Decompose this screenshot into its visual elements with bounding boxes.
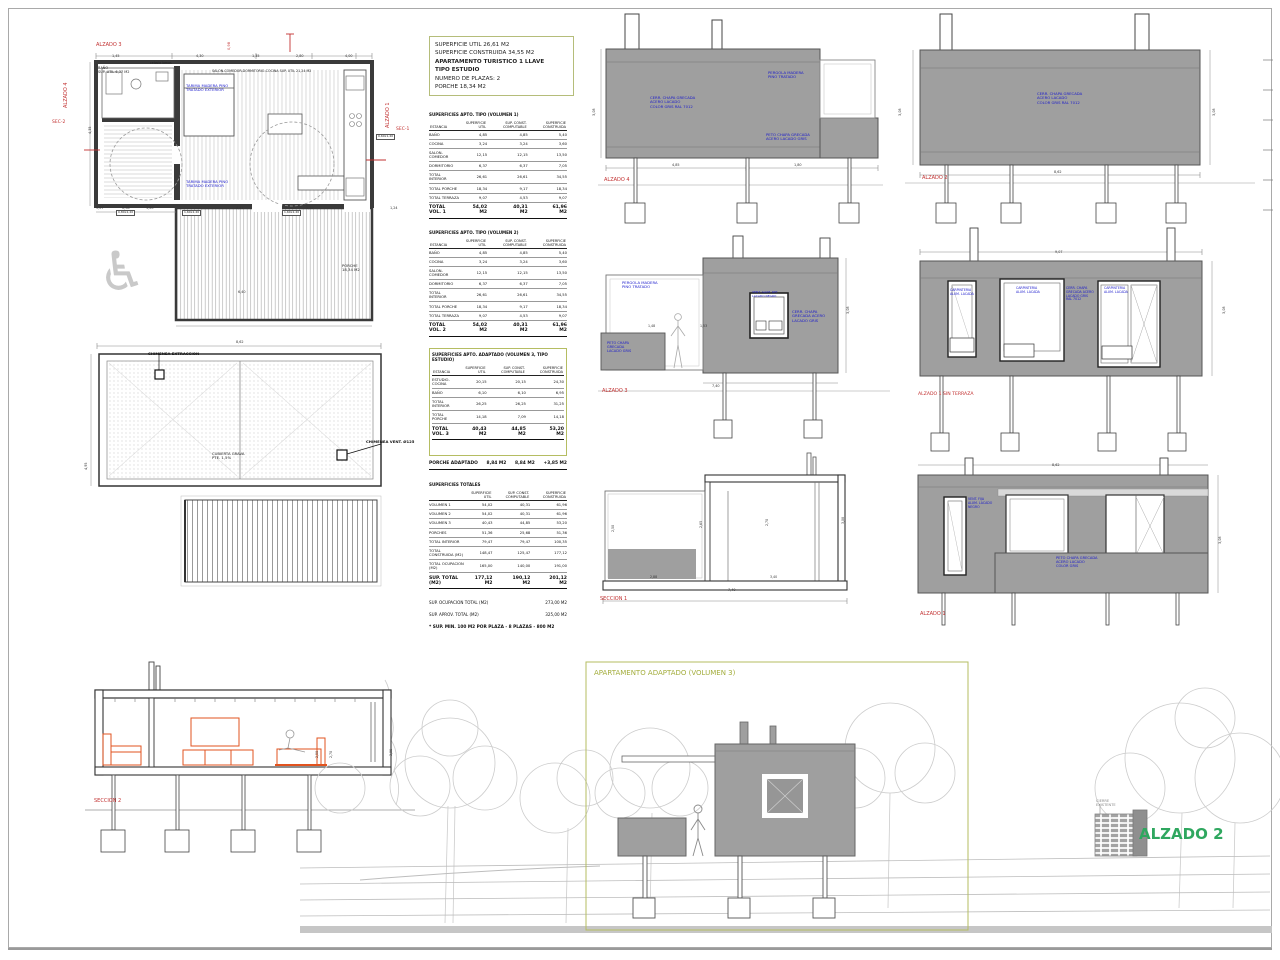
dim: 3,08: [846, 306, 850, 314]
porch-volume: [618, 818, 686, 856]
plan-partition: [174, 66, 180, 200]
dim: 1,53: [700, 325, 707, 329]
dim: 7,40: [712, 384, 720, 388]
alzado-3: [598, 233, 890, 443]
window: [1006, 495, 1068, 555]
dim: 1,80: [794, 163, 802, 167]
surface-tables-column: SUPERFICIES APTO. TIPO (VOLUMEN 1)ESTANC…: [429, 112, 567, 630]
partition: [149, 698, 154, 767]
alzado4-label: ALZADO 4: [604, 178, 630, 184]
wheelchair-icon: ♿: [98, 240, 146, 304]
dim: 3,08: [390, 749, 394, 756]
plan-sec2-label: SEC-2: [52, 120, 65, 125]
summary-line: SUPERFICIE UTIL 26,61 M2: [435, 41, 568, 49]
door-chip: 1,60x2,20: [182, 210, 201, 216]
alzado1-note1: VENT. FIJA ALUM. LACADO NEGRO: [968, 498, 992, 509]
alzado-1-sin-terraza: [912, 228, 1264, 463]
plan-alzado1-label: ALZADO 1: [386, 102, 392, 128]
dim: 4,95: [84, 462, 88, 470]
kitchen-strip: [344, 70, 366, 200]
dim: 1,20: [146, 206, 154, 210]
window: [944, 497, 966, 575]
chimney: [965, 458, 1168, 475]
summary-line: PORCHE 18,34 M2: [435, 83, 568, 91]
pilotis: [101, 775, 321, 852]
alzado4-note3: PETO CHAPA GRECADA ACERO LACADO GRIS: [766, 133, 810, 142]
dim: 4,00: [345, 54, 353, 58]
dim: 3,08: [1222, 306, 1226, 314]
alzado1-note2: PETO CHAPA GRECADA ACERO LACADO COLOR GR…: [1056, 556, 1098, 569]
plan-sec1-label: SEC-1: [396, 127, 409, 132]
surface-table-vol1: SUPERFICIES APTO. TIPO (VOLUMEN 1)ESTANC…: [429, 112, 567, 219]
porch-extra-row: PORCHE ADAPTADO8,84 M28,84 M2+3,85 M2: [429, 461, 567, 470]
drawing-sheet: SUPERFICIE UTIL 26,61 M2 SUPERFICIE CONS…: [0, 0, 1280, 960]
dim: 5,07: [96, 206, 104, 210]
seccion1-label: SECCION 1: [600, 597, 627, 603]
roof-chimney: [155, 370, 164, 379]
section-1: [595, 453, 880, 621]
dim: 2,70: [330, 751, 334, 758]
plan-alzado3-label: ALZADO 3: [96, 43, 122, 49]
dim: 2,70: [766, 519, 770, 526]
roof-chimney: [337, 450, 347, 460]
plan-porche-label: PORCHE 18,34 M2: [342, 264, 360, 273]
window-chip: 0,60x1,20: [376, 134, 395, 140]
dim: 1,24: [390, 206, 398, 210]
plan-red-dim: 0,98: [227, 42, 231, 50]
summary-line: NUMERO DE PLAZAS: 2: [435, 75, 568, 83]
plan-note-2: TARIMA MADERA PINO TRATADO EXTERIOR: [186, 180, 228, 189]
floor-slab: [603, 581, 847, 590]
roof-chimenea2-label: CHIMENEA VENT. Ø125: [366, 440, 414, 444]
surface-table-vol2: SUPERFICIES APTO. TIPO (VOLUMEN 2)ESTANC…: [429, 230, 567, 337]
alzado3-note1: PERGOLA MADERA PINO TRATADO: [622, 281, 658, 290]
alzado4-note2: PERGOLA MADERA PINO TRATADO: [768, 71, 804, 80]
window-door: [1106, 495, 1164, 557]
terrace-frame: [820, 60, 875, 118]
roof-plan: [85, 340, 405, 590]
alzado2-render-label: ALZADO 2: [1139, 826, 1224, 844]
alzado-4: [598, 10, 883, 236]
rendered-elevation-scene: [300, 628, 1272, 954]
dim: 1,45: [112, 54, 120, 58]
dim: 2,50: [612, 525, 616, 532]
alzado-2-elevation: [905, 10, 1277, 236]
alzado1st-note4: CARPINTERIA ALUM. LACADA: [1104, 287, 1128, 295]
dim: 3,08: [592, 108, 596, 116]
roof-center-label: CUBIERTA GRAVA PTE. 1,5%: [212, 452, 244, 461]
dim: 4,30: [196, 54, 204, 58]
alzado3-label: ALZADO 3: [602, 389, 628, 395]
dim: 7,40: [728, 588, 736, 592]
summary-line: TIPO ESTUDIO: [435, 66, 568, 74]
plan-celosia-label: celosia lamas: [150, 62, 172, 66]
alzado3-note2: VENT. ALUM. RPT LACADO NEGRO: [752, 291, 778, 298]
edge-ruler-ticks: [1263, 60, 1273, 210]
alzado4-note1: CERR. CHAPA GRECADA ACERO LACADO COLOR G…: [650, 96, 695, 109]
plan-bath-wall: [102, 118, 174, 122]
alzado2-elev-label: ALZADO 2: [922, 176, 948, 182]
bed-furniture: [103, 734, 141, 765]
dim: 2,88: [650, 576, 657, 580]
plan-alzado4-label: ALZADO 4: [64, 82, 70, 108]
door-chip: 1,60x2,20: [282, 210, 301, 216]
dim: 2,80: [296, 54, 304, 58]
dim: 8,62: [1054, 170, 1062, 174]
dim: 8,62: [1052, 463, 1060, 467]
window: [762, 774, 808, 818]
dim: 1,35: [252, 54, 260, 58]
dim: 6,40: [238, 290, 246, 294]
window: [750, 293, 788, 338]
left-wall: [95, 690, 103, 775]
roof-chimenea1-label: CHIMENEA EXTRACCION: [148, 352, 199, 356]
mid-wall: [705, 482, 710, 587]
dim: 3,08: [1212, 108, 1216, 116]
surface-table-totals: SUPERFICIES TOTALESSUPERFICIE UTILSUP. C…: [429, 482, 567, 589]
pergola-slats: [185, 500, 377, 582]
alzado3-note4: PETO CHAPA GRECADA LACADO GRIS: [607, 341, 631, 353]
adapted-volume-title: APARTAMENTO ADAPTADO (VOLUMEN 3): [594, 669, 735, 677]
island: [268, 114, 302, 134]
plan-left-room-deck: [104, 124, 172, 198]
pilotis: [633, 856, 835, 918]
canopy: [622, 756, 718, 762]
summary-line: SUPERFICIE CONSTRUIDA 34,55 M2: [435, 49, 568, 57]
dim: 2,65: [700, 521, 704, 528]
chimney: [807, 453, 816, 475]
chimney: [940, 14, 1149, 50]
dim: 4,85: [672, 163, 680, 167]
summary-line: APARTAMENTO TURISTICO 1 LLAVE: [435, 58, 568, 66]
pilotis: [942, 593, 1179, 625]
dim: 1,39: [306, 206, 314, 210]
summary-box: SUPERFICIE UTIL 26,61 M2 SUPERFICIE CONS…: [429, 36, 574, 96]
plan-note-1: TARIMA MADERA PINO TRATADO EXTERIOR: [186, 84, 228, 93]
alzado1st-label: ALZADO 1 SIN TERRAZA: [918, 392, 974, 397]
dim: 2,50: [316, 751, 320, 758]
totals-footer-line: SUP. APROV. TOTAL (M2)325,00 M2: [429, 612, 567, 617]
pilotis: [931, 376, 1186, 451]
plan-bano-label: BAÑO SUP. UTIL 6,37 M2: [98, 66, 130, 74]
plan-salon-label: SALON-COMEDOR-DORMITORIO-COCINA SUP. UTI…: [212, 70, 311, 74]
alzado1st-note1: CARPINTERIA ALUM. LACADA: [950, 289, 974, 297]
terrace-parapet: [995, 553, 1208, 593]
bathroom: [102, 68, 174, 118]
chimney: [149, 662, 160, 690]
chimney: [740, 722, 776, 746]
totals-final-line: * SUP. MIN. 100 M2 POR PLAZA - 8 PLAZAS …: [429, 625, 567, 630]
roof-slab: [705, 475, 845, 482]
tv-furniture: [183, 718, 253, 765]
dim: 3,08: [842, 517, 846, 524]
alzado2-note: CERR. CHAPA GRECADA ACERO LACADO COLOR G…: [1037, 92, 1082, 105]
chimney: [625, 14, 722, 49]
dim: 4,47: [236, 206, 244, 210]
chimney: [970, 228, 1175, 261]
dim: 4,35: [88, 126, 92, 134]
dim: 1,48: [648, 325, 655, 329]
dim: 3,08: [1218, 536, 1222, 544]
stone-wall: [1095, 814, 1137, 856]
alzado1st-note2: CARPINTERIA ALUM. LACADA: [1016, 287, 1040, 295]
dim: 3,40: [770, 576, 777, 580]
right-wall: [838, 475, 845, 587]
surface-table-vol3: SUPERFICIES APTO. ADAPTADO (VOLUMEN 3, T…: [432, 352, 564, 440]
facade: [920, 50, 1200, 165]
dim: 8,62: [236, 340, 244, 344]
alzado3-note3: CERR. CHAPA GRECADA ACERO LACADO GRIS: [792, 310, 825, 323]
seccion2-label: SECCION 2: [94, 799, 121, 805]
facade-ext: [820, 118, 878, 158]
alzado1st-note3: CERR. CHAPA GRECADA ACERO LACADO GRIS RA…: [1066, 287, 1094, 302]
chimney: [733, 236, 830, 258]
dim: 3,08: [898, 108, 902, 116]
alzado1-label: ALZADO 1: [920, 612, 946, 618]
dim: 9,07: [1055, 250, 1063, 254]
sofa: [298, 176, 344, 190]
cierre-existente-label: CIERRE EXISTENTE: [1096, 799, 1116, 807]
totals-footer-line: SUP. OCUPACION TOTAL (M2)273,00 M2: [429, 600, 567, 605]
door-chip: 0,80x2,20: [116, 210, 135, 216]
